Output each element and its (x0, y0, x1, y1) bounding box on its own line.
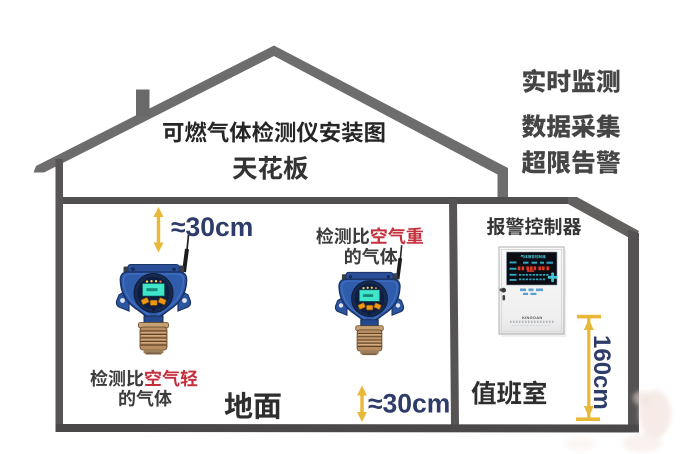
svg-text:KINGOAN: KINGOAN (522, 315, 542, 320)
svg-text:160cm: 160cm (588, 335, 615, 410)
svg-text:≈30cm: ≈30cm (171, 212, 253, 242)
svg-text:≈30cm: ≈30cm (368, 389, 450, 419)
